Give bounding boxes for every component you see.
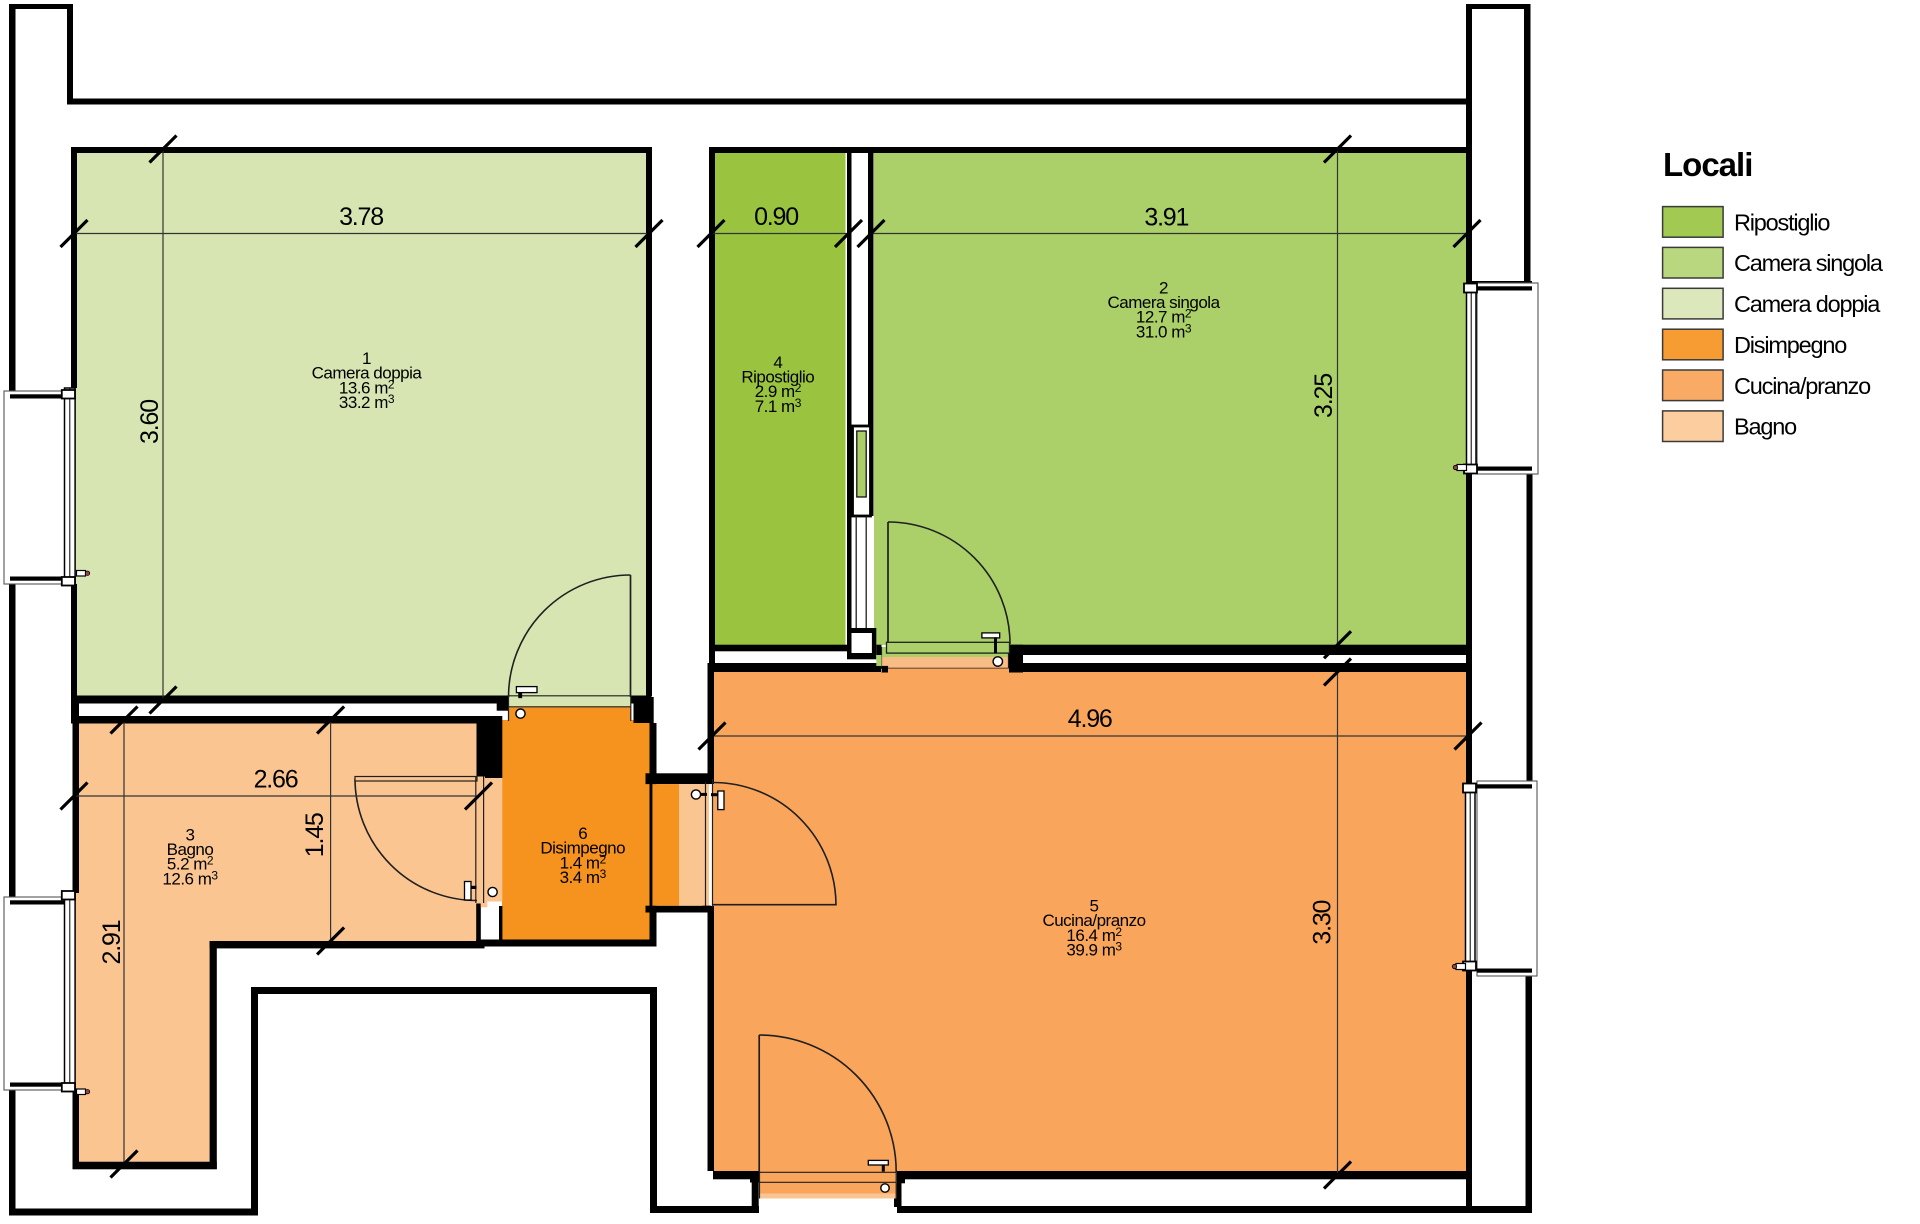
svg-text:3.4 m3: 3.4 m3 [560, 867, 607, 887]
svg-text:3.60: 3.60 [136, 400, 164, 444]
svg-text:Bagno: Bagno [1734, 414, 1797, 440]
svg-text:3.78: 3.78 [339, 203, 383, 231]
svg-text:3.30: 3.30 [1309, 900, 1337, 944]
svg-text:1.45: 1.45 [301, 813, 329, 857]
svg-text:Ripostiglio: Ripostiglio [1734, 209, 1830, 235]
svg-text:Disimpegno: Disimpegno [1734, 332, 1847, 358]
svg-text:31.0 m3: 31.0 m3 [1136, 321, 1192, 341]
svg-text:2.91: 2.91 [98, 920, 126, 964]
svg-text:Camera doppia: Camera doppia [1734, 291, 1881, 317]
svg-text:3.25: 3.25 [1310, 374, 1338, 418]
svg-text:2.66: 2.66 [254, 766, 298, 794]
svg-text:3.91: 3.91 [1144, 203, 1188, 231]
svg-text:Camera singola: Camera singola [1734, 250, 1884, 276]
svg-text:4.96: 4.96 [1068, 705, 1112, 733]
svg-text:7.1 m3: 7.1 m3 [755, 396, 802, 416]
svg-text:Locali: Locali [1663, 146, 1752, 183]
svg-text:0.90: 0.90 [754, 203, 798, 231]
svg-text:Cucina/pranzo: Cucina/pranzo [1734, 373, 1871, 399]
svg-text:12.6 m3: 12.6 m3 [162, 868, 218, 888]
svg-text:33.2 m3: 33.2 m3 [339, 392, 395, 412]
svg-text:39.9 m3: 39.9 m3 [1066, 940, 1122, 960]
